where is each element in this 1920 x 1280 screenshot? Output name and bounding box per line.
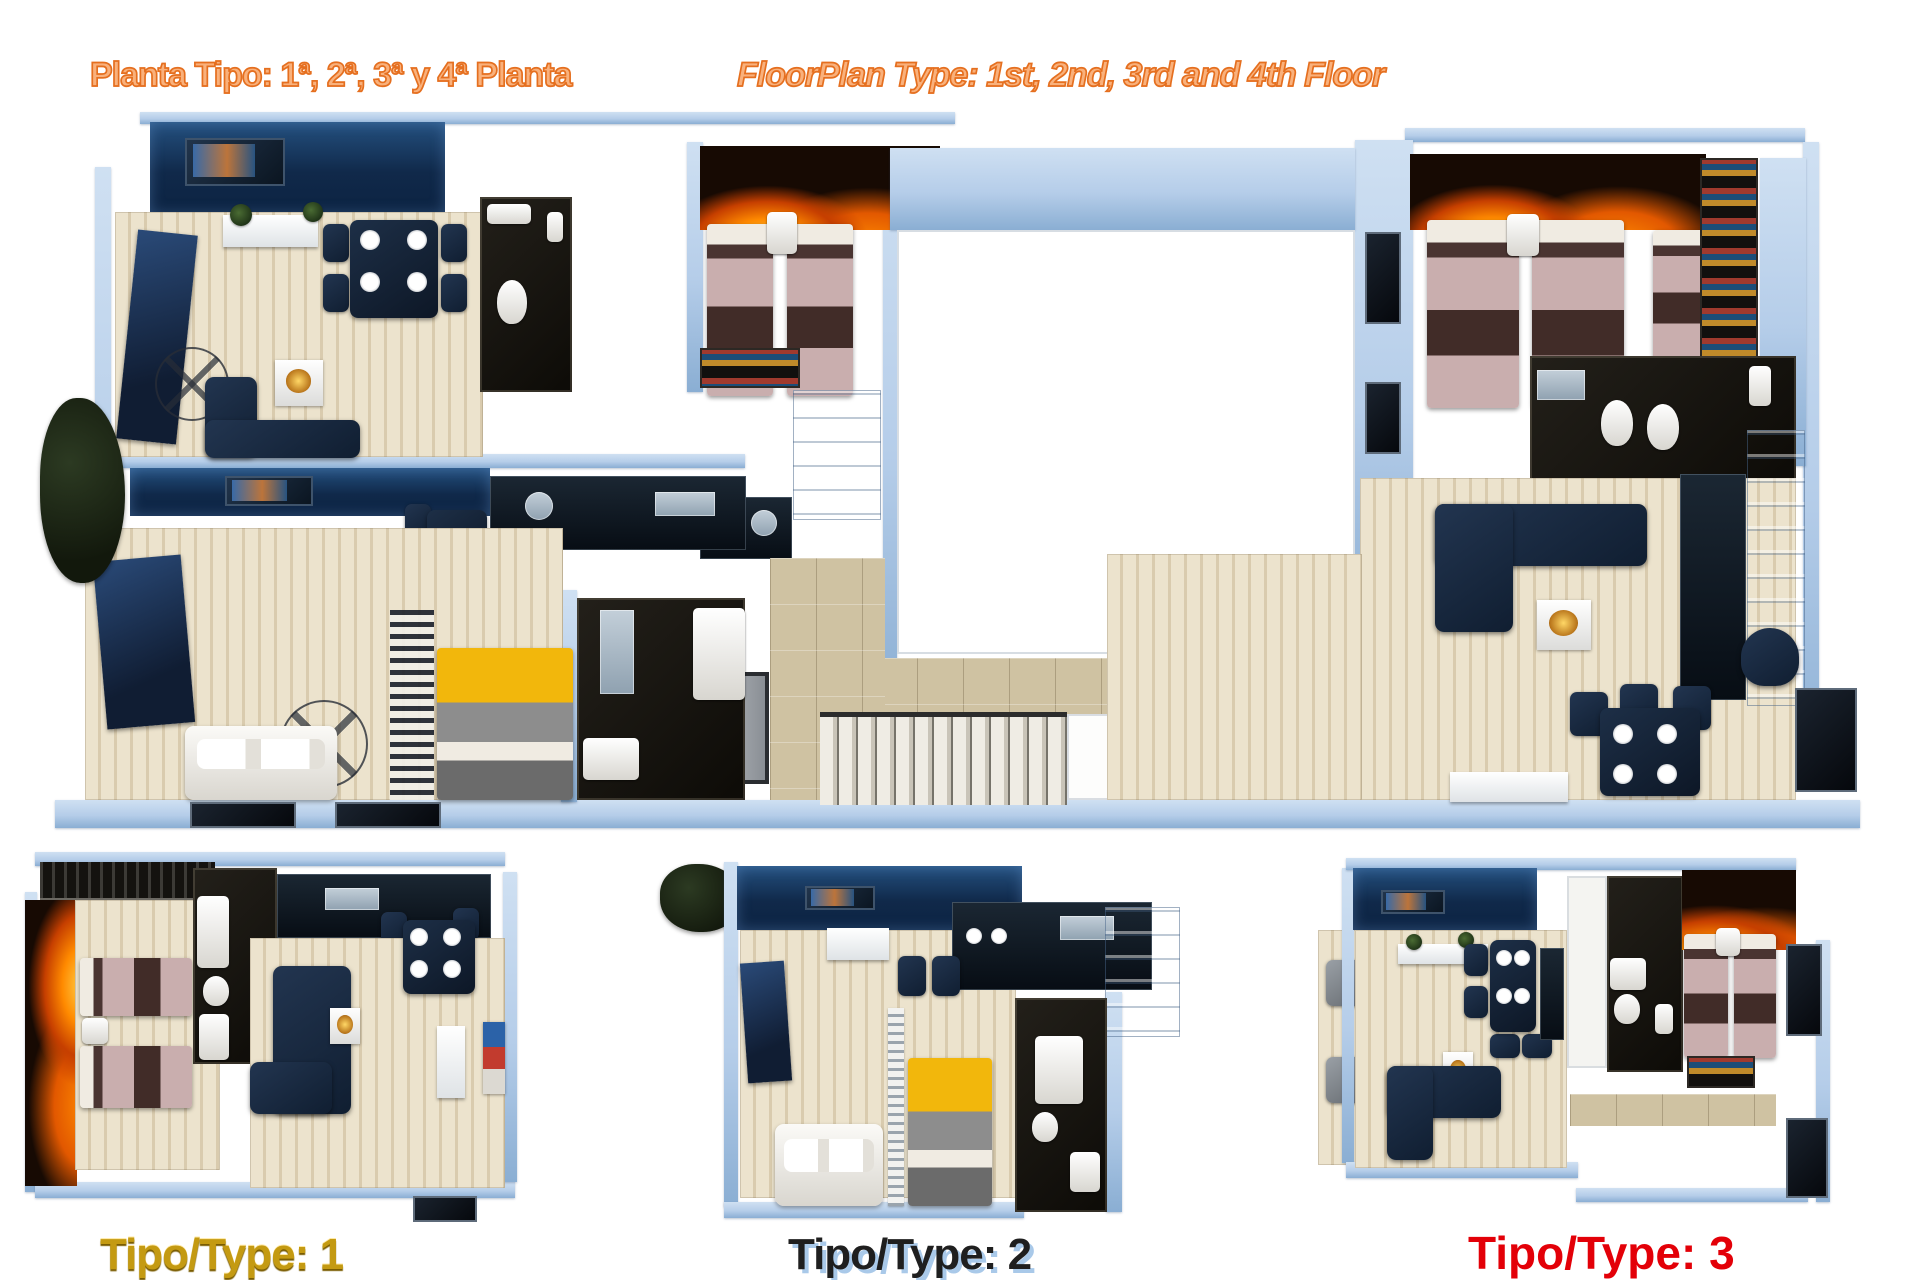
plate-icon [407,230,427,250]
t2-toilet [1032,1112,1058,1142]
t3-sofa-corner [1387,1066,1433,1160]
unit-c-armchair [1741,628,1799,686]
t3-window-2 [1786,1118,1828,1198]
label-type-1: Tipo/Type: 1 [100,1230,343,1280]
t1-sink [199,1014,229,1060]
t2-wall-left [724,862,738,1207]
main-wall-courtyard-left [883,148,897,710]
t2-kitchen-tall-units [1105,907,1180,1037]
courtyard-top-wall [890,148,1355,230]
t2-white-sofa [775,1124,883,1206]
t1-fire-mural-wall [25,900,77,1186]
plate-icon [410,960,428,978]
unit-c-window-2 [1365,382,1401,454]
unit-c-twin-bed [1427,220,1519,408]
t2-room-divider [888,1008,904,1206]
plate-icon [407,272,427,292]
plate-icon [1496,988,1512,1004]
unit-a-tv-screen [185,138,285,186]
t3-dining-chair [1464,986,1488,1018]
unit-b-shower-tray [693,608,745,700]
unit-b-window-1 [190,802,296,828]
unit-a-kitchen-cabinets [793,390,881,520]
t2-wall-art [740,961,792,1084]
t2-shower [1035,1036,1083,1104]
t3-dresser [1687,1056,1755,1088]
unit-a-plant-2-icon [303,202,323,222]
type-1-floor-plan [25,852,625,1232]
unit-c-bidet [1647,404,1679,450]
t1-twin-bed [80,958,192,1016]
plate-icon [1514,988,1530,1004]
t3-window-1 [1786,944,1822,1036]
unit-b-kitchen-hood [655,492,715,516]
t3-kitchen-counter [1540,948,1564,1040]
unit-b-shelf-ladder [390,610,434,800]
unit-a-dining-chair [323,224,349,262]
bedroom-1-wardrobe [700,348,800,388]
unit-c-sofa-corner [1435,504,1513,632]
unit-b-tv-screen [225,476,313,506]
page-title-spanish: Planta Tipo: 1ª, 2ª, 3ª y 4ª Planta [90,56,571,95]
unit-c-window-3 [1795,688,1857,792]
t2-stool-icon [991,928,1007,944]
label-type-2: Tipo/Type: 2 [788,1230,1031,1280]
t1-twin-bed [80,1046,192,1108]
unit-a-towel [547,212,563,242]
t3-wall-bottom-right [1576,1188,1808,1202]
unit-a-dining-chair [441,274,467,312]
plate-icon [443,928,461,946]
t1-credenza [437,1026,465,1098]
exterior-plant [40,398,125,583]
t2-sideboard [827,928,889,960]
type-2-floor-plan [660,852,1220,1232]
bedroom-1-nightstand [767,212,797,254]
t1-entry-threshold [413,1196,477,1222]
unit-a-fireplace [275,360,323,406]
plate-icon [1496,950,1512,966]
t2-sink [1070,1152,1100,1192]
t3-corridor [1570,1094,1776,1126]
staircase [820,712,1067,805]
t2-tv-screen [805,886,875,910]
unit-b-mirror [600,610,634,694]
t1-nightstand [82,1018,108,1044]
t3-dining-chair [1464,944,1488,976]
main-wall-top-right [1405,128,1805,142]
hob-icon [751,510,777,536]
t3-plant-icon [1406,934,1422,950]
plate-icon [1514,950,1530,966]
unit-a-toilet [497,280,527,324]
plate-icon [410,928,428,946]
t1-wall-art [483,1022,505,1094]
t2-double-bed-yellow [908,1058,992,1206]
t2-stool-icon [966,928,982,944]
t1-toilet [203,976,229,1006]
t2-slipper-chair [898,956,926,996]
plate-icon [1657,764,1677,784]
unit-a-dining-chair [323,274,349,312]
type-3-floor-plan [1318,852,1883,1227]
t1-closet-rail [40,862,215,900]
unit-b-double-bed-yellow [437,648,573,800]
main-floor-plan [55,112,1865,848]
plate-icon [1613,724,1633,744]
t3-hallway [1567,876,1607,1068]
unit-c-credenza [1450,772,1568,802]
t1-sofa-corner [250,1062,332,1114]
t3-tv-screen [1381,890,1445,914]
t1-shower [197,896,229,968]
unit-c-fireplace [1537,600,1591,650]
unit-c-towel [1749,366,1771,406]
unit-a-sink [487,204,531,224]
plate-icon [360,272,380,292]
t3-laundry-bag [1655,1004,1673,1034]
unit-c-kitchen-tall-units [1680,474,1746,700]
unit-b-wall-art [93,554,195,729]
unit-c-nightstand [1507,214,1539,256]
unit-b-window-2 [335,802,441,828]
t2-slipper-chair [932,956,960,996]
t3-toilet [1614,994,1640,1024]
plate-icon [1657,724,1677,744]
t3-pillow [1716,928,1740,956]
unit-c-sink [1537,370,1585,400]
unit-a-dining-chair [441,224,467,262]
unit-c-living-floor-extension [1107,554,1362,800]
plate-icon [1613,764,1633,784]
t3-sink [1610,958,1646,990]
unit-b-white-sofa [185,726,337,800]
label-type-3: Tipo/Type: 3 [1468,1226,1735,1280]
unit-a-plant-icon [230,204,252,226]
floorplan-brochure-page: Planta Tipo: 1ª, 2ª, 3ª y 4ª Planta Floo… [0,0,1920,1280]
t3-dining-chair [1490,1034,1520,1058]
unit-b-sink [583,738,639,780]
page-title-english: FloorPlan Type: 1st, 2nd, 3rd and 4th Fl… [737,56,1384,95]
unit-a-sofa [205,420,360,458]
t1-kitchen-hood [325,888,379,910]
t3-twin-bed [1734,934,1776,1058]
plate-icon [443,960,461,978]
unit-c-toilet [1601,400,1633,446]
plate-icon [360,230,380,250]
t1-fireplace [330,1008,360,1044]
unit-c-dining-table [1600,708,1700,796]
unit-c-fire-mural-wall [1410,154,1706,230]
t1-wall-right [503,872,517,1182]
unit-c-window-1 [1365,232,1401,324]
hob-icon [525,492,553,520]
